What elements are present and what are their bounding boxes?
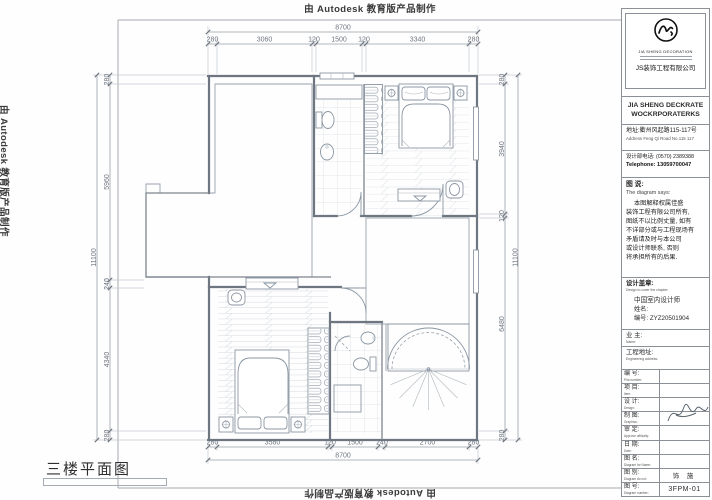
disclaimer-line: 图纸不以比例丈量, 如有 — [626, 217, 705, 226]
row-label-cn: 图 号: — [624, 484, 657, 491]
dim-label: 3060 — [257, 37, 273, 44]
row-label-en: Date: — [624, 449, 657, 453]
disclaimer-line: 矛盾请及时与本公司 — [626, 235, 705, 244]
floor-plan-canvas: 8700 280 3060 120 1500 120 3340 280 280 … — [0, 0, 712, 500]
nightstand-icon — [454, 86, 467, 100]
designer-name-label: 姓名: — [634, 305, 705, 314]
row-value — [660, 441, 709, 454]
row-label-cn: 制 图: — [624, 413, 657, 420]
table-row: 日 期:Date: — [622, 441, 709, 455]
row-label-en: Graphics: — [624, 420, 657, 424]
landing-tiles — [366, 218, 469, 324]
owner-label-cn: 业 主: — [626, 332, 705, 340]
disclaimer-line: 不详部分或与工程现场有 — [626, 226, 705, 235]
table-row: 图 号:Diagram number: 3FPM-01 — [622, 483, 709, 496]
sink-icon — [321, 144, 334, 160]
title-block: JIA SHENG DECORATION JS装饰工程有限公司 JIA SHEN… — [621, 8, 710, 497]
dim-label: 280 — [499, 430, 506, 442]
bed-icon — [399, 84, 453, 148]
row-value — [660, 370, 709, 383]
dim-label: 120 — [308, 37, 320, 44]
dim-label: 280 — [207, 440, 219, 447]
edu-stamp-left: 由 Autodesk 教育版产品制作 — [0, 105, 12, 237]
row-label-en: Item: — [624, 392, 657, 396]
disclaimer-line: 装饰工程有限公司所有, — [626, 208, 705, 217]
sink-icon — [361, 332, 375, 344]
seal-section: 设计盖章: Design to cover the chapter: 中国室内设… — [622, 278, 709, 330]
nightstand-icon — [219, 417, 233, 432]
dim-label: 280 — [468, 37, 480, 44]
company-logo-icon — [653, 17, 679, 43]
disclaimer-line: 或设计师联系, 否则 — [626, 244, 705, 253]
hangers-icon — [309, 329, 328, 413]
project-address-section: 工程地址: Engineering address: — [622, 347, 709, 370]
tv-cabinet-icon — [246, 278, 298, 289]
dim-label: 11100 — [513, 248, 520, 267]
row-label-en: Diagram do not: — [624, 477, 657, 481]
drawing-sheet: 8700 280 3060 120 1500 120 3340 280 280 … — [0, 0, 712, 500]
dimension-top: 8700 280 3060 120 1500 120 3340 280 — [206, 25, 480, 75]
owner-label-en: Name: — [626, 340, 705, 345]
dim-label: 120 — [358, 37, 370, 44]
phone-cn: 设计部电话: (0570) 2389388 — [626, 153, 705, 161]
logo-section: JIA SHENG DECORATION JS装饰工程有限公司 — [622, 9, 709, 97]
chair-icon — [228, 290, 245, 305]
plan-title: 三楼平面图 — [46, 458, 131, 479]
wardrobe-lower — [308, 328, 329, 414]
toilet-icon — [316, 112, 334, 129]
seal-label-cn: 设计盖章: — [626, 280, 705, 288]
dim-label: 6480 — [499, 316, 506, 332]
row-label-cn: 审 定: — [624, 427, 657, 434]
desk-icon — [398, 189, 440, 201]
company-name-cn: JS装饰工程有限公司 — [626, 62, 705, 72]
dim-label: 11100 — [91, 248, 98, 267]
company-name-en: JIA SHENG DECKRATE WOCKRPORATERKS — [622, 97, 709, 125]
bed-icon — [235, 350, 289, 433]
project-address-en: Engineering address: — [626, 357, 705, 362]
notes-section: 图 说: The diagram says: 本图解释权属佳盛 装饰工程有限公司… — [622, 178, 709, 278]
designer-signature — [664, 397, 710, 433]
terrace-tiles — [146, 84, 312, 277]
door-icon — [341, 288, 366, 313]
row-label-cn: 日 期: — [624, 442, 657, 449]
company-en-line2: WOCKRPORATERKS — [626, 110, 705, 119]
row-value: 3FPM-01 — [660, 483, 709, 496]
dim-label: 1500 — [331, 37, 347, 44]
dim-label: 2700 — [420, 440, 436, 447]
dim-label: 3580 — [265, 440, 281, 447]
owner-section: 业 主: Name: — [622, 330, 709, 347]
dim-label: 8700 — [335, 453, 351, 460]
window-icon — [474, 250, 479, 293]
dimension-right: 280 3940 120 6480 280 11100 — [479, 73, 522, 442]
address-section: 地址:衢州风起路115-117号 Address Feng Qi Road No… — [622, 125, 709, 151]
row-label-cn: 图 名: — [624, 456, 657, 463]
dim-label: 5960 — [104, 174, 111, 190]
dim-label: 4340 — [104, 352, 111, 368]
company-en-line1: JIA SHENG DECKRATE — [626, 101, 705, 110]
dim-label: 280 — [207, 37, 219, 44]
designer-no: 编号: ZYZ20501904 — [634, 314, 705, 323]
disclaimer-line: 将承担所有的后果. — [626, 253, 705, 262]
shower-icon — [316, 85, 362, 99]
row-value — [660, 455, 709, 468]
hangers-icon — [365, 85, 382, 153]
window-icon — [320, 73, 354, 79]
dim-label: 280 — [468, 440, 480, 447]
row-value: 饰 施 — [660, 469, 709, 482]
dim-label: 3340 — [410, 37, 426, 44]
phone-section: 设计部电话: (0570) 2389388 Telephone: 1305970… — [622, 151, 709, 178]
table-row: 图 名:Diagram for Name: — [622, 455, 709, 469]
disclaimer-line: 本图解释权属佳盛 — [626, 199, 705, 208]
notes-title-en: The diagram says: — [626, 189, 705, 197]
dim-label: 120 — [499, 210, 506, 222]
wardrobe-upper — [365, 85, 383, 154]
window-icon — [474, 107, 479, 160]
table-row: 编 号:Plot number: — [622, 370, 709, 384]
nightstand-icon — [291, 417, 305, 432]
dim-label: 280 — [499, 74, 506, 86]
address-en: Address Feng Qi Road No.115 117 — [626, 135, 705, 142]
plan-title-underline — [43, 478, 167, 486]
nightstand-icon — [385, 86, 398, 100]
title-block-table: 编 号:Plot number: 项 目:Item: 设 计:Design: 制… — [622, 370, 709, 496]
toilet-icon — [354, 357, 377, 371]
row-label-cn: 设 计: — [624, 399, 657, 406]
phone-en: Telephone: 13059700047 — [626, 161, 705, 170]
row-value — [660, 384, 709, 397]
table-row: 图 别:Diagram do not: 饰 施 — [622, 469, 709, 483]
address-cn: 地址:衢州风起路115-117号 — [626, 127, 705, 135]
dim-label: 3940 — [499, 141, 506, 157]
row-label-en: Plot number: — [624, 378, 657, 382]
seal-label-en: Design to cover the chapter: — [626, 288, 705, 293]
chair-icon — [446, 181, 463, 198]
row-label-en: Diagram number: — [624, 491, 657, 495]
dim-label: 120 — [324, 440, 336, 447]
dim-label: 280 — [104, 430, 111, 442]
notes-title-cn: 图 说: — [626, 180, 705, 189]
logo-frame: JIA SHENG DECORATION JS装饰工程有限公司 — [625, 13, 706, 89]
row-label-en: Design: — [624, 406, 657, 410]
dimension-left: 280 5960 240 4340 280 11100 — [91, 73, 206, 442]
designer-cert: 中国室内设计师 — [634, 296, 705, 305]
dim-label: 1500 — [347, 440, 363, 447]
edu-stamp-bottom: 由 Autodesk 教育版产品制作 — [118, 487, 622, 500]
dim-label: 240 — [376, 440, 388, 447]
staircase — [388, 324, 470, 410]
row-label-cn: 项 目: — [624, 385, 657, 392]
dim-label: 240 — [104, 278, 111, 290]
row-label-en: Approve officially: — [624, 434, 657, 438]
row-label-cn: 图 别: — [624, 470, 657, 477]
project-address-cn: 工程地址: — [626, 349, 705, 357]
row-label-cn: 编 号: — [624, 371, 657, 378]
row-label-en: Diagram for Name: — [624, 463, 657, 467]
edu-stamp-top: 由 Autodesk 教育版产品制作 — [118, 1, 622, 15]
logo-fine-print — [640, 56, 692, 60]
dimension-bottom: 280 3580 120 1500 240 2700 280 8700 — [206, 440, 480, 465]
dim-label: 8700 — [335, 25, 351, 32]
dim-label: 280 — [104, 74, 111, 86]
logo-brand-text: JIA SHENG DECORATION — [626, 49, 705, 54]
